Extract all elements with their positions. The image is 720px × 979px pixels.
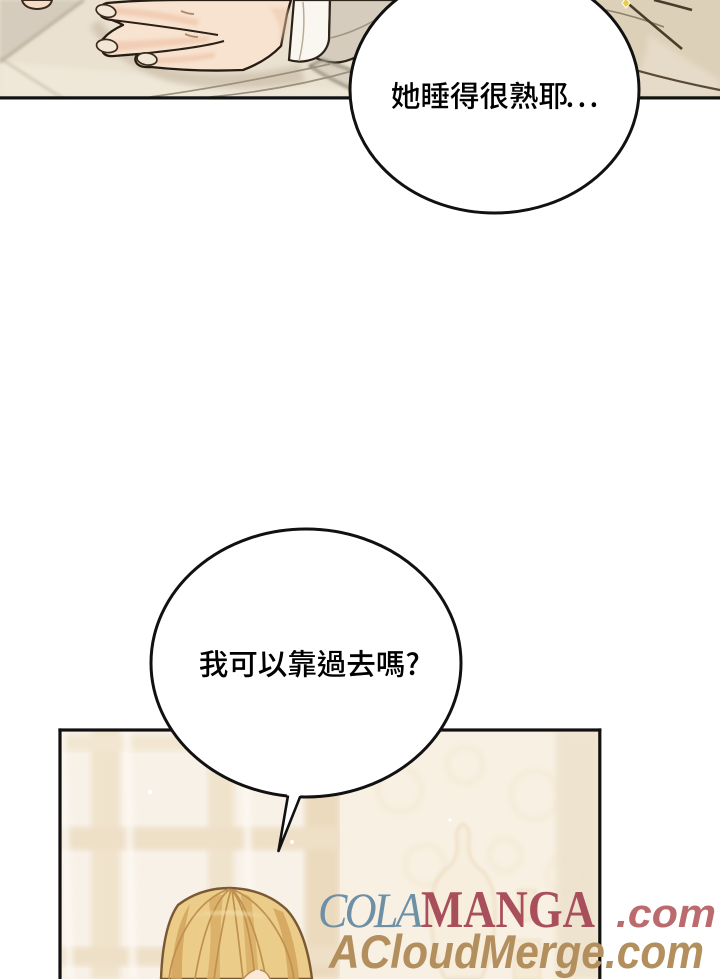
svg-text:ACloudMerge.com: ACloudMerge.com	[328, 925, 704, 978]
